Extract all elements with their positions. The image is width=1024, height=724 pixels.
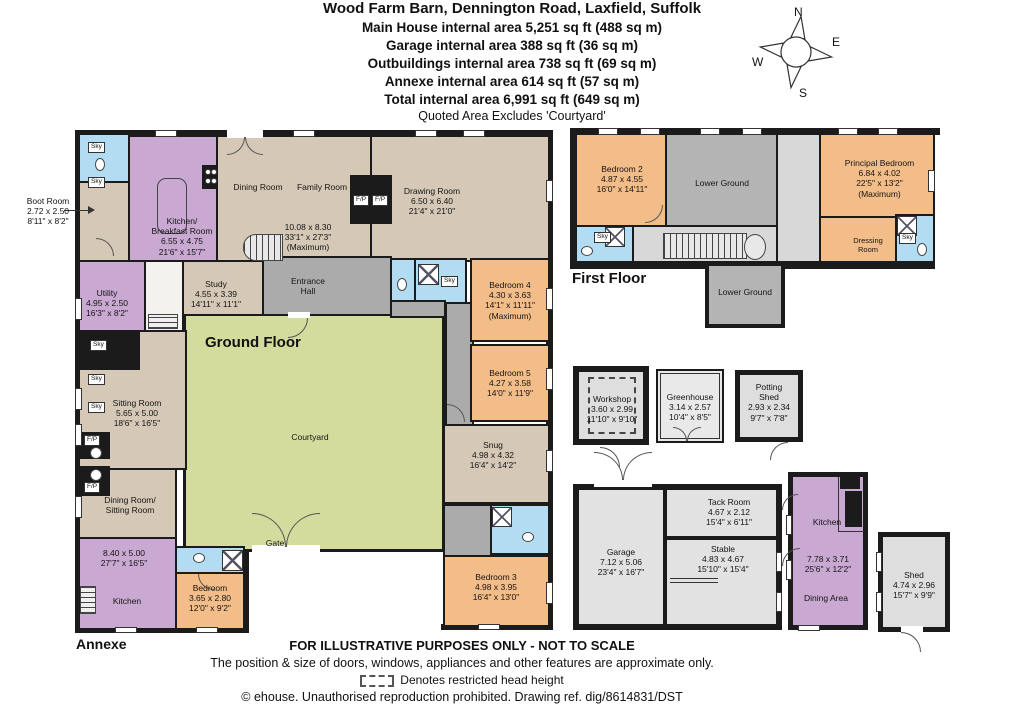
- room-lobby: [443, 504, 492, 557]
- burner-icon: [211, 178, 217, 184]
- label-annexe-bedroom: Bedroom3.65 x 2.8012'0" x 9'2": [175, 583, 245, 614]
- label-family-room: Family Room: [282, 182, 362, 192]
- fireplace-label: F/P: [372, 195, 388, 206]
- window: [115, 627, 137, 633]
- label-stable: Stable4.83 x 4.6715'10" x 15'4": [683, 544, 763, 575]
- window: [75, 388, 82, 410]
- ground-floor-title: Ground Floor: [205, 334, 301, 351]
- footer-legend-text: Denotes restricted head height: [400, 673, 563, 687]
- window: [838, 128, 858, 135]
- label-lower-ground-2: Lower Ground: [703, 287, 787, 297]
- window: [75, 424, 82, 446]
- compass-w: W: [752, 55, 764, 69]
- window: [546, 450, 553, 472]
- window: [546, 180, 553, 202]
- toilet-icon: [397, 278, 407, 291]
- window: [928, 170, 935, 192]
- footer-legend: Denotes restricted head height: [0, 673, 924, 687]
- footer-disclaimer: FOR ILLUSTRATIVE PURPOSES ONLY - NOT TO …: [0, 638, 924, 653]
- wall: [781, 262, 935, 269]
- shower-icon: [492, 507, 512, 527]
- area-outbuildings: Outbuildings internal area 738 sq ft (69…: [0, 56, 1024, 71]
- skylight-label: Sky: [594, 232, 611, 243]
- label-bedroom-5: Bedroom 54.27 x 3.5814'0" x 11'9": [470, 368, 550, 399]
- floorplan-page: Wood Farm Barn, Dennington Road, Laxfiel…: [0, 0, 1024, 724]
- window: [546, 582, 553, 604]
- wall: [663, 490, 667, 624]
- label-outbuilding-kitchen-dims: 7.78 x 3.7125'6" x 12'2": [793, 554, 863, 574]
- compass-rose-icon: N E S W: [750, 4, 842, 100]
- garage-door-arc: [594, 452, 623, 480]
- area-note: Quoted Area Excludes 'Courtyard': [0, 109, 1024, 123]
- shower-icon: [222, 550, 243, 571]
- label-sitting-room: Sitting Room5.65 x 5.0018'6" x 16'5": [97, 398, 177, 429]
- window: [776, 552, 782, 572]
- burner-icon: [211, 169, 217, 175]
- label-greenhouse: Greenhouse3.14 x 2.5710'4" x 8'5": [650, 392, 730, 423]
- window: [876, 552, 882, 572]
- window: [798, 625, 820, 631]
- footer-copyright: © ehouse. Unauthorised reproduction proh…: [0, 690, 924, 704]
- header: Wood Farm Barn, Dennington Road, Laxfiel…: [0, 0, 1024, 123]
- stove-icon: [90, 469, 102, 481]
- stair-curve: [744, 234, 766, 260]
- wall: [663, 536, 776, 540]
- label-annexe-dims: 8.40 x 5.0027'7" x 16'5": [84, 548, 164, 568]
- window: [786, 560, 792, 580]
- label-dining-family-dims: 10.08 x 8.3033'1" x 27'3"(Maximum): [268, 222, 348, 253]
- window: [700, 128, 720, 135]
- label-entrance-hall: EntranceHall: [278, 276, 338, 296]
- pointer-arrow-icon: [88, 206, 95, 214]
- window: [155, 130, 177, 137]
- skylight-label: Sky: [441, 276, 458, 287]
- compass-s: S: [799, 86, 807, 100]
- area-main-house: Main House internal area 5,251 sq ft (48…: [0, 20, 1024, 35]
- window: [196, 627, 218, 633]
- counter-line: [838, 531, 864, 532]
- door-arc: [770, 442, 788, 460]
- label-workshop: Workshop3.60 x 2.9911'10" x 9'10": [577, 394, 647, 425]
- label-study: Study4.55 x 3.3914'11" x 11'1": [176, 279, 256, 310]
- window: [742, 128, 762, 135]
- label-principal-bedroom: Principal Bedroom6.84 x 4.0222'5" x 13'2…: [832, 158, 927, 199]
- area-garage: Garage internal area 388 sq ft (36 sq m): [0, 38, 1024, 53]
- wall: [570, 262, 709, 269]
- window: [878, 128, 898, 135]
- label-tack-room: Tack Room4.67 x 2.1215'4" x 6'11": [689, 497, 769, 528]
- skylight-label: Sky: [88, 142, 105, 153]
- window: [478, 624, 500, 630]
- label-lower-ground: Lower Ground: [682, 178, 762, 188]
- shower-icon: [418, 264, 439, 285]
- label-bedroom-4: Bedroom 44.30 x 3.6314'1" x 11'11"(Maxim…: [470, 280, 550, 321]
- toilet-icon: [193, 553, 205, 563]
- skylight-label: Sky: [88, 374, 105, 385]
- staircase: [663, 233, 747, 259]
- window: [776, 592, 782, 612]
- window: [415, 130, 437, 137]
- toilet-icon: [95, 158, 105, 171]
- label-snug: Snug4.98 x 4.3216'4" x 14'2": [453, 440, 533, 471]
- garage-door-opening: [594, 479, 652, 487]
- toilet-icon: [581, 246, 593, 256]
- window: [293, 130, 315, 137]
- label-shed: Shed4.74 x 2.9615'7" x 9'9": [879, 570, 949, 601]
- room-landing: [776, 133, 821, 263]
- staircase: [148, 314, 178, 329]
- fireplace-label: F/P: [84, 435, 100, 446]
- label-utility: Utility4.95 x 2.5016'3" x 8'2": [70, 288, 144, 319]
- window: [598, 128, 618, 135]
- label-potting-shed: PottingShed2.93 x 2.349'7" x 7'8": [734, 382, 804, 423]
- label-dressing-room: DressingRoom: [838, 236, 898, 254]
- label-courtyard: Courtyard: [270, 432, 350, 442]
- fireplace-label: F/P: [84, 482, 100, 493]
- stable-divider: [670, 578, 718, 583]
- room-bathroom: [78, 133, 130, 183]
- footer: FOR ILLUSTRATIVE PURPOSES ONLY - NOT TO …: [0, 638, 924, 704]
- toilet-icon: [917, 243, 927, 256]
- window: [75, 496, 82, 518]
- label-drawing-room: Drawing Room6.50 x 6.4021'4" x 21'0": [392, 186, 472, 217]
- room-corridor: [390, 300, 446, 318]
- fireplace-label: F/P: [353, 195, 369, 206]
- page-title: Wood Farm Barn, Dennington Road, Laxfiel…: [0, 0, 1024, 17]
- label-gate: Gate: [255, 538, 295, 548]
- toilet-icon: [522, 532, 534, 542]
- stove-icon: [90, 447, 102, 459]
- label-bedroom-3: Bedroom 34.98 x 3.9516'4" x 13'0": [456, 572, 536, 603]
- area-annexe: Annexe internal area 614 sq ft (57 sq m): [0, 74, 1024, 89]
- label-bedroom-2: Bedroom 24.87 x 4.5516'0" x 14'11": [582, 164, 662, 195]
- label-outbuilding-kitchen: Kitchen: [792, 517, 862, 527]
- compass-e: E: [832, 35, 840, 49]
- label-boot-room: Boot Room2.72 x 2.508'11" x 8'2": [8, 196, 88, 227]
- counter-appliance: [840, 477, 860, 489]
- window: [640, 128, 660, 135]
- skylight-label: Sky: [90, 340, 107, 351]
- label-kitchen-breakfast: Kitchen/Breakfast Room6.55 x 4.7521'6" x…: [142, 216, 222, 257]
- first-floor-title: First Floor: [572, 270, 646, 287]
- compass-n: N: [794, 5, 803, 19]
- skylight-label: Sky: [899, 233, 916, 244]
- wall: [78, 330, 140, 370]
- area-total: Total internal area 6,991 sq ft (649 sq …: [0, 92, 1024, 107]
- restricted-head-height-icon: [360, 675, 394, 687]
- skylight-label: Sky: [88, 177, 105, 188]
- label-annexe-kitchen: Kitchen: [87, 596, 167, 606]
- door-arc: [782, 494, 798, 510]
- label-dining-area: Dining Area: [791, 593, 861, 603]
- garage-door-arc: [623, 452, 652, 480]
- label-garage: Garage7.12 x 5.0623'4" x 16'7": [581, 547, 661, 578]
- footer-approximate-note: The position & size of doors, windows, a…: [0, 656, 924, 670]
- label-annexe-dining-sitting: Dining Room/Sitting Room: [90, 495, 170, 515]
- window: [463, 130, 485, 137]
